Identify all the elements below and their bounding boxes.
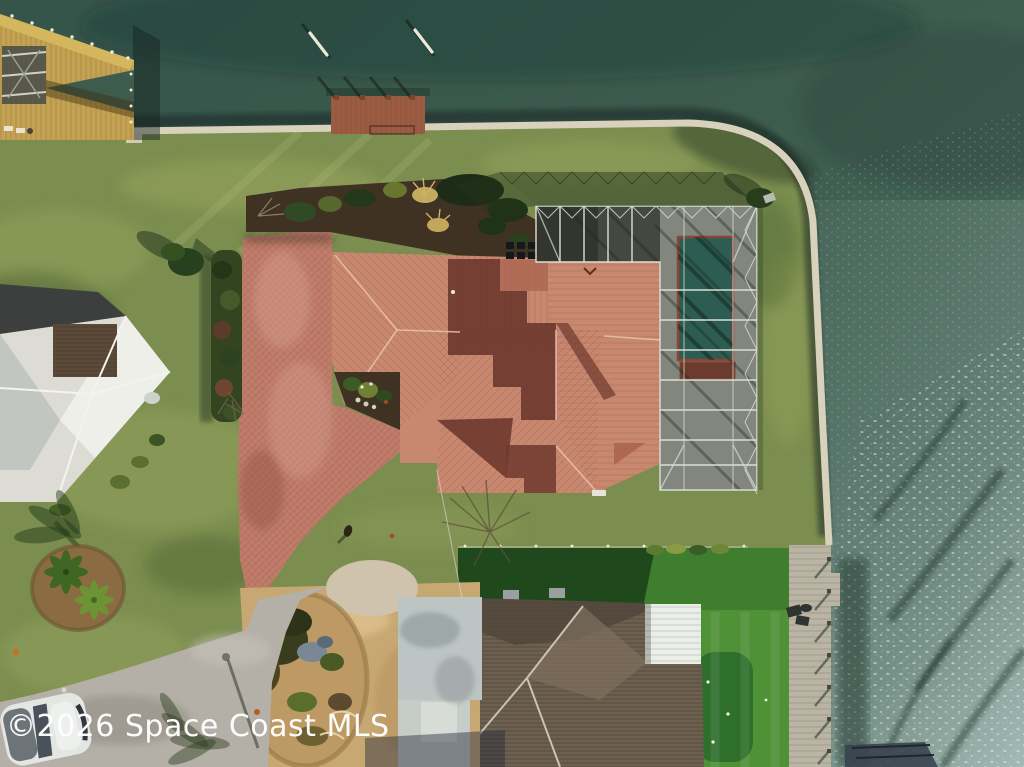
guest-house-roof bbox=[470, 588, 704, 767]
dock-shadow-on-water bbox=[133, 25, 160, 140]
watermark-text: ©2026 Space Coast MLS bbox=[6, 710, 390, 744]
aerial-photo: ©2026 Space Coast MLS bbox=[0, 0, 1024, 767]
scene-canvas bbox=[0, 0, 1024, 767]
cage-shadow-on-grass bbox=[455, 172, 757, 212]
boat-lift-frame bbox=[2, 46, 46, 104]
